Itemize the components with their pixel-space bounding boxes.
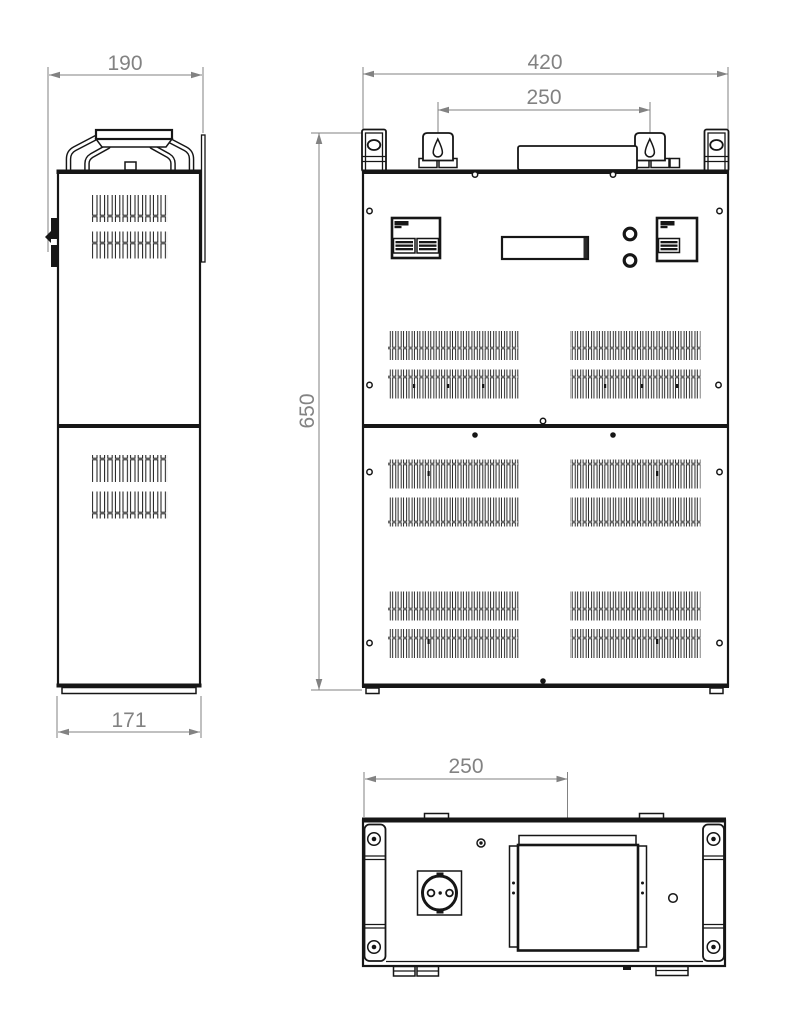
front-view: 420 250 650 <box>296 51 729 694</box>
dimension-side-bottom-width: 171 <box>57 696 201 738</box>
handle-mount-right <box>705 130 729 172</box>
bottom-view: 250 <box>362 755 726 976</box>
dim-label-front-width: 420 <box>527 51 562 74</box>
terminal-cover-panel <box>510 836 647 951</box>
breaker-box-left <box>392 218 440 258</box>
brand-label-blob <box>661 221 675 226</box>
side-view: 190 <box>45 52 205 738</box>
control-button-upper[interactable] <box>624 228 636 240</box>
power-socket[interactable] <box>418 871 462 915</box>
dim-label-side-bottom-width: 171 <box>111 709 146 732</box>
breaker-box-right <box>657 218 697 261</box>
control-button-lower[interactable] <box>624 255 636 267</box>
rocker-switch[interactable] <box>394 239 416 254</box>
side-base-foot <box>62 688 196 694</box>
top-notch <box>125 162 136 170</box>
side-section-divider <box>58 424 200 428</box>
dimension-front-mount-spacing: 250 <box>438 86 650 146</box>
rail-left <box>365 825 386 962</box>
rocker-switch[interactable] <box>659 239 680 253</box>
display-window <box>502 237 588 259</box>
front-foot-left <box>366 688 379 694</box>
dim-label-front-mount-spacing: 250 <box>526 86 561 109</box>
brand-label-blob <box>395 221 409 226</box>
hinge-tabs <box>45 218 58 267</box>
bottom-front-edge <box>362 818 726 823</box>
keyhole-bracket-left <box>419 133 457 168</box>
front-foot-right <box>710 688 723 694</box>
dimension-front-height: 650 <box>296 133 362 690</box>
side-top-edge <box>57 170 202 175</box>
dim-label-side-top-width: 190 <box>107 52 142 75</box>
dim-label-front-height: 650 <box>296 393 319 428</box>
top-small-tab <box>670 159 680 168</box>
rocker-switch[interactable] <box>417 239 439 254</box>
technical-drawing: 190 <box>0 0 791 1024</box>
front-top-edge <box>362 170 729 175</box>
display-shade <box>584 238 588 258</box>
front-section-divider <box>362 424 729 428</box>
rail-right <box>703 825 724 962</box>
drawing-canvas: 190 <box>0 0 791 1024</box>
top-strip <box>518 146 637 170</box>
front-bottom-edge <box>362 684 729 689</box>
handle-mount-left <box>362 130 386 172</box>
dim-label-bottom-panel-offset: 250 <box>448 755 483 778</box>
wall-bracket-edge <box>202 135 206 262</box>
